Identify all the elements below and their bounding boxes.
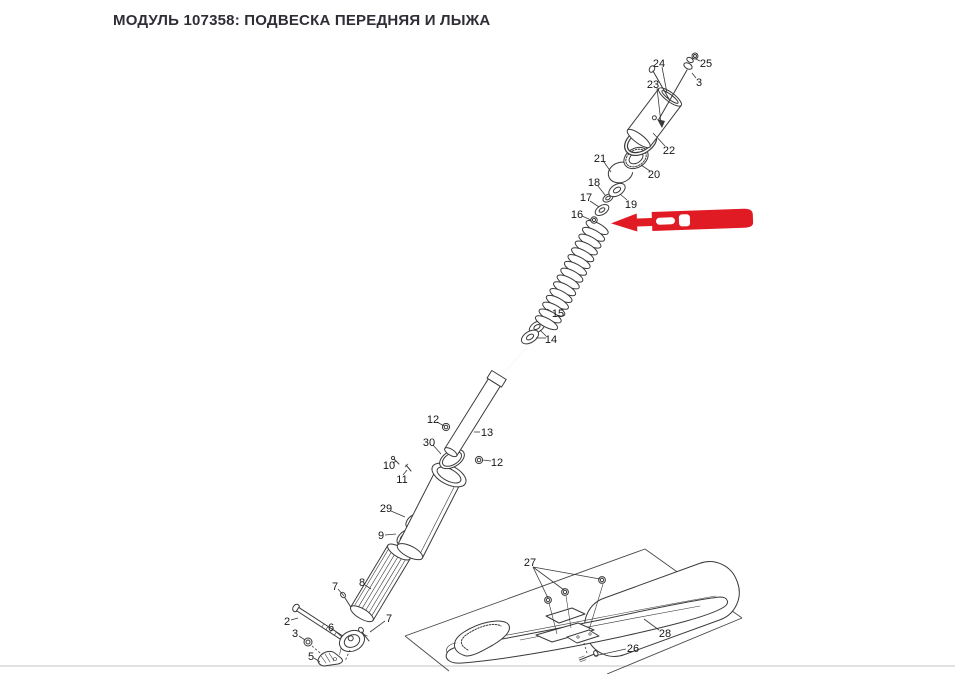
callout-label-14: 14: [545, 334, 557, 346]
shock-absorber-13: [442, 370, 506, 459]
callout-label-27: 27: [524, 557, 536, 569]
callout-label-7-lower: 7: [386, 613, 392, 625]
callout-label-13: 13: [481, 427, 493, 439]
callout-label-28: 28: [659, 628, 671, 640]
callout-label-23: 23: [647, 79, 659, 91]
cylinder-22: [625, 85, 684, 151]
callout-label-20: 20: [648, 169, 660, 181]
callout-label-29: 29: [380, 503, 392, 515]
callout-label-25: 25: [700, 58, 712, 70]
callout-label-30: 30: [423, 437, 435, 449]
nut-16: [591, 217, 597, 223]
callout-label-9: 9: [378, 530, 384, 542]
callout-label-24: 24: [653, 58, 665, 70]
bolt-7-upper: [340, 591, 352, 609]
pin-11: [405, 464, 411, 471]
callout-label-6: 6: [328, 622, 334, 634]
callout-label-3-top: 3: [696, 77, 702, 89]
nut-12-upper: [442, 423, 449, 430]
coil-spring-15: [534, 218, 610, 333]
callout-label-12-upper: 12: [427, 414, 439, 426]
callout-label-21: 21: [594, 153, 606, 165]
nut-12-lower: [475, 456, 482, 463]
callout-label-17: 17: [580, 192, 592, 204]
callout-label-11: 11: [396, 474, 407, 486]
callout-label-18: 18: [588, 177, 600, 189]
callout-label-2: 2: [284, 616, 290, 628]
callout-label-15: 15: [552, 308, 564, 320]
callout-label-16: 16: [571, 209, 583, 221]
exploded-parts-diagram: 24 25 23 3 22 21 20 18 19 17 16 15 14 12…: [0, 0, 955, 674]
callout-label-12-lower: 12: [491, 457, 503, 469]
callout-label-10: 10: [383, 460, 395, 472]
shock-rod-highlight: [500, 342, 532, 377]
red-pointer-arrow: [611, 208, 754, 232]
callout-label-3-bottom: 3: [292, 628, 298, 640]
callout-label-5: 5: [308, 651, 314, 663]
bracket-5: [318, 651, 342, 666]
ski-part-28: [446, 553, 747, 664]
callout-label-26: 26: [627, 643, 639, 655]
ball-joint-6: [332, 625, 370, 657]
callout-label-19: 19: [625, 199, 637, 211]
nut-25: [692, 53, 698, 59]
callout-label-7-upper: 7: [332, 581, 338, 593]
callout-label-8: 8: [359, 577, 365, 589]
callout-label-22: 22: [663, 145, 675, 157]
